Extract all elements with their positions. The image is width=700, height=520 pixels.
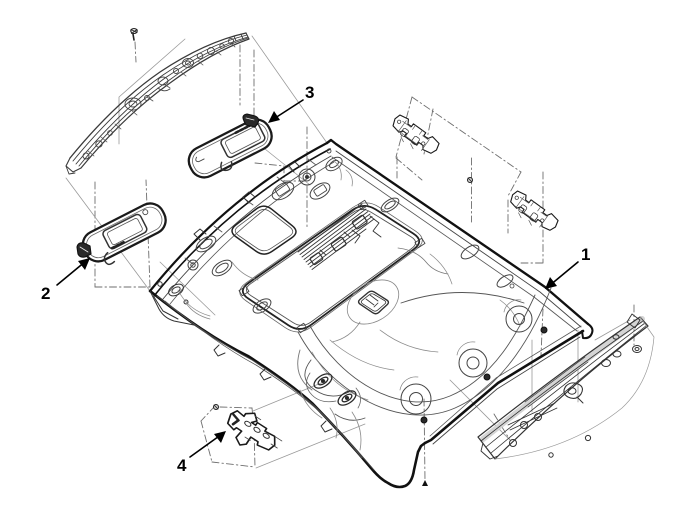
svg-text:3: 3: [305, 83, 314, 102]
svg-text:1: 1: [581, 245, 590, 264]
svg-text:4: 4: [177, 456, 187, 475]
svg-text:2: 2: [41, 284, 50, 303]
